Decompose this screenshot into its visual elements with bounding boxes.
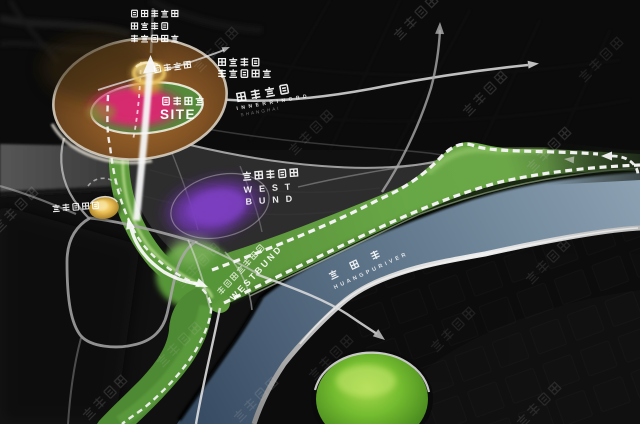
svg-text:SITE: SITE (160, 107, 196, 122)
